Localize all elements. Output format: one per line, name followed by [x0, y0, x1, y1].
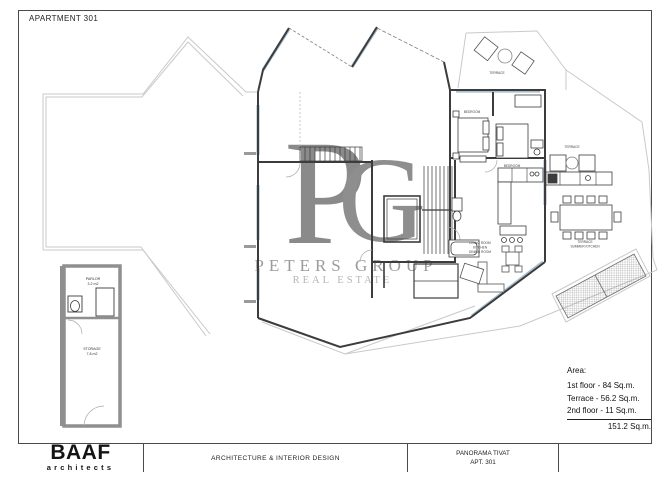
baaf-logo-subtitle: architects	[47, 463, 114, 472]
architect-logo-cell: BAAF architects	[18, 444, 143, 472]
bedroom-furniture	[453, 95, 543, 162]
label-bedroom2: BEDROOM	[504, 164, 521, 168]
label-storage-area: 7.8 m2	[87, 352, 98, 356]
label-parlor-area: 3.2 m2	[88, 282, 99, 286]
label-bedroom1: BEDROOM	[464, 110, 481, 114]
drawing-sheet: APARTMENT 301 P G PETERS GROUP REAL ESTA…	[0, 0, 668, 482]
label-parlor-name: PARLOR	[86, 277, 101, 281]
sheet-name: APT. 301	[470, 458, 496, 467]
label-living-3: DINING ROOM	[469, 250, 491, 254]
baaf-logo: BAAF	[50, 444, 110, 463]
area-total: 151.2 Sq.m.	[567, 419, 651, 431]
label-living-1: LIVING ROOM	[469, 241, 491, 245]
area-line-1st-floor: 1st floor - 84 Sq.m.	[567, 381, 651, 390]
project-name: PANORAMA TIVAT	[456, 449, 510, 458]
label-summer-kitchen-1: TERRACE	[577, 240, 592, 244]
label-summer-kitchen-2: SUMMER KITCHEN	[570, 245, 600, 249]
roof-terrace-furniture	[474, 37, 534, 74]
bath-kitchen	[449, 168, 543, 257]
area-line-2nd-floor: 2nd floor - 11 Sq.m.	[567, 406, 651, 415]
room-labels: TERRACE BEDROOM BEDROOM TERRACE TERRACE …	[83, 71, 600, 356]
area-summary: Area: 1st floor - 84 Sq.m. Terrace - 56.…	[567, 366, 651, 431]
label-storage-name: STORAGE	[83, 347, 101, 351]
project-cell: PANORAMA TIVAT APT. 301	[407, 444, 558, 472]
staircase	[300, 147, 458, 298]
label-terrace-right: TERRACE	[564, 145, 579, 149]
title-block: BAAF architects ARCHITECTURE & INTERIOR …	[18, 443, 652, 472]
summer-kitchen	[546, 155, 621, 239]
label-terrace-top: TERRACE	[489, 71, 504, 75]
annex	[62, 266, 120, 426]
area-line-terrace: Terrace - 56.2 Sq.m.	[567, 394, 651, 403]
studio-cell: ARCHITECTURE & INTERIOR DESIGN	[143, 444, 407, 472]
empty-cell	[558, 444, 652, 472]
label-living-2: KITCHEN	[473, 246, 488, 250]
area-heading: Area:	[567, 366, 651, 375]
